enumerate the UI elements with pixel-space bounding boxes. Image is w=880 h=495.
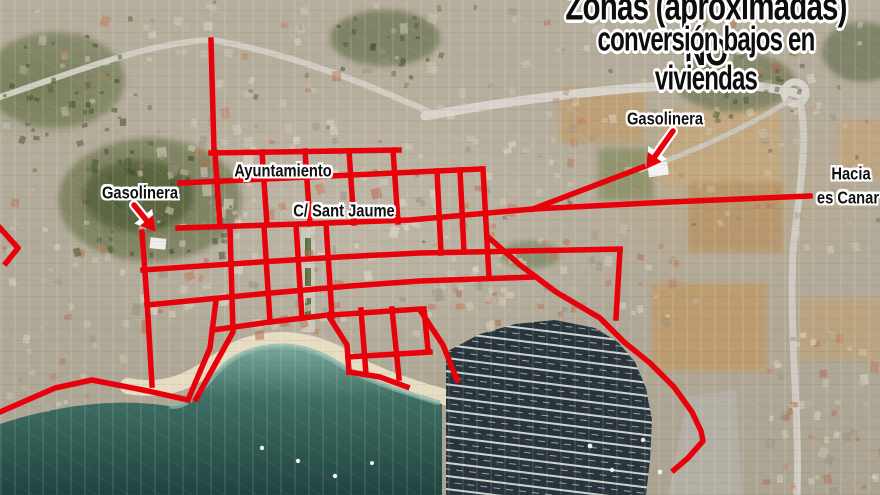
zone-line-5 — [143, 249, 620, 270]
zone-line-7 — [147, 277, 535, 305]
zone-line-32 — [424, 309, 428, 350]
zone-line-9 — [0, 380, 188, 412]
zone-line-13 — [264, 226, 270, 322]
title-line-2: conversión bajos en viviendas — [564, 21, 849, 99]
zone-line-3 — [178, 196, 810, 228]
zone-line-8 — [142, 232, 152, 385]
zone-line-25 — [437, 171, 441, 253]
zone-line-16 — [328, 315, 349, 372]
arrow-to-gasolinera-east — [646, 131, 673, 169]
label-es-canar: es Canar — [817, 189, 879, 208]
zone-line-31 — [392, 309, 399, 378]
zone-line-19 — [488, 237, 703, 470]
zone-line-0 — [211, 40, 214, 152]
label-ayuntamiento: Ayuntamiento — [234, 162, 332, 181]
zone-line-14 — [296, 225, 302, 318]
map-canvas: GasolineraAyuntamientoC/ Sant JaumeGasol… — [0, 0, 880, 495]
label-carrer-sant-jaume: C/ Sant Jaume — [293, 202, 394, 221]
zone-line-33 — [0, 228, 18, 263]
label-hacia: Hacia — [831, 165, 870, 184]
arrow-to-gasolinera-west — [134, 205, 156, 232]
label-gasolinera-east: Gasolinera — [627, 110, 703, 129]
zone-line-30 — [361, 310, 366, 374]
zone-line-20 — [215, 152, 220, 226]
zone-line-28 — [332, 309, 420, 315]
zone-line-27 — [483, 169, 489, 277]
zone-line-6 — [616, 250, 620, 318]
zone-line-26 — [460, 170, 464, 252]
zone-line-15 — [326, 224, 332, 316]
map-title: Zonas (aproximadas) NO conversión bajos … — [528, 0, 880, 70]
label-gasolinera-west: Gasolinera — [102, 184, 178, 203]
zone-line-29 — [348, 352, 430, 357]
